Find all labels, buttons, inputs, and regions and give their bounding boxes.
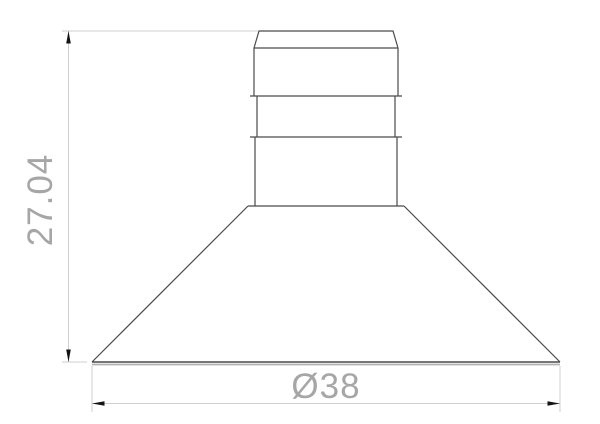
height-dimension-text: 27.04 xyxy=(21,154,60,247)
dimension-height: 27.04 xyxy=(21,31,258,362)
dimension-diameter: Ø38 xyxy=(92,366,560,412)
stem-top-cap-edge xyxy=(254,31,398,48)
cone-left-slope xyxy=(92,206,248,362)
drawing-canvas: 27.04 Ø38 xyxy=(0,0,600,424)
height-arrow-down-icon xyxy=(66,350,71,363)
diameter-dimension-text: Ø38 xyxy=(291,367,360,406)
part-outline xyxy=(92,31,560,365)
diameter-arrow-left-icon xyxy=(92,401,105,406)
diameter-arrow-right-icon xyxy=(548,401,561,406)
technical-drawing: 27.04 Ø38 xyxy=(0,0,600,424)
cone-right-slope xyxy=(404,206,560,362)
height-arrow-up-icon xyxy=(66,31,71,44)
